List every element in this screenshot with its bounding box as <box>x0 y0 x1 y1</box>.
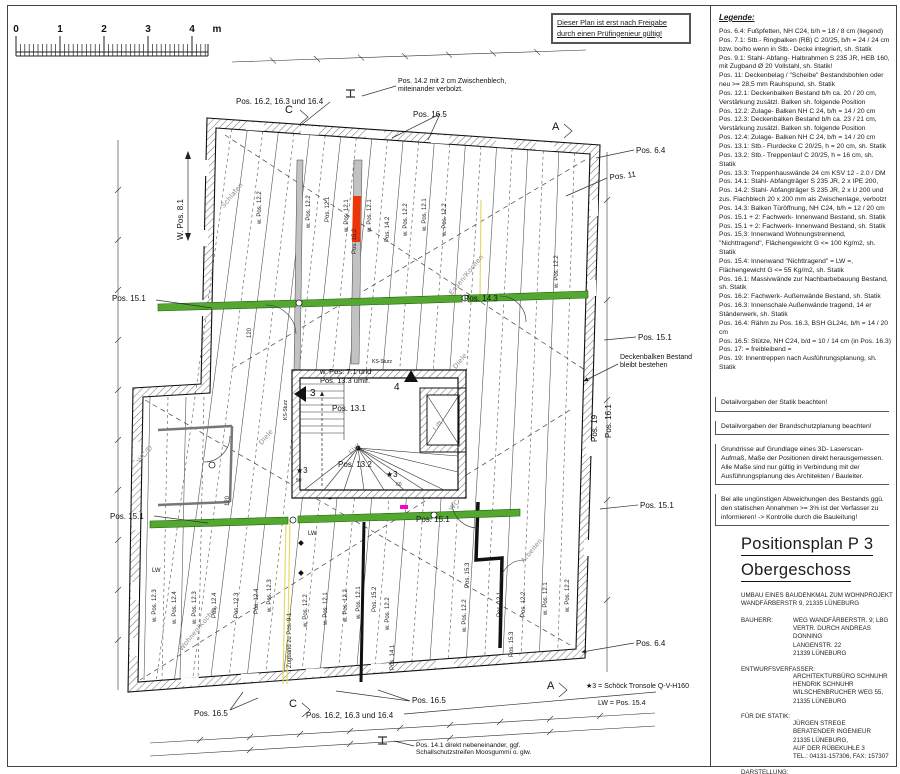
note-brandschutz: Detailvorgaben der Brandschutzplanung be… <box>715 421 889 436</box>
section-flag-c-top <box>300 110 308 124</box>
section-flag-a-bottom <box>559 683 567 697</box>
green-beams-row2 <box>150 509 520 528</box>
legend-heading: Legende: <box>719 13 891 22</box>
plan-title-line2: Obergeschoss <box>741 561 851 582</box>
green-beams-row1 <box>158 291 588 311</box>
note-laserscan: Grundrisse auf Grundlage eines 3D- Laser… <box>715 444 889 485</box>
note-statik: Detailvorgaben der Statik beachten! <box>715 397 889 412</box>
project-description: UMBAU EINES BAUDENKMAL ZUM WOHNPROJEKT W… <box>741 592 893 609</box>
section-flag-c-bottom <box>302 703 310 717</box>
statik-label: FÜR DIE STATIK: <box>741 713 893 720</box>
approval-note-text: Dieser Plan ist erst nach Freigabe durch… <box>557 18 667 38</box>
bauherr-row: BAUHERR: WEG WANDFÄRBERSTR. 9; LBG VERTR… <box>741 617 893 659</box>
darstellung-label: DARSTELLUNG: <box>741 769 893 774</box>
entwurf-value: ARCHITEKTURBÜRO SCHNUHR HENDRIK SCHNUHR … <box>793 673 893 706</box>
ibeam-icon <box>378 737 387 744</box>
scale-bar: 0 1 2 3 4 m <box>12 22 232 66</box>
scale-label-3: 3 <box>145 24 151 35</box>
legend-entries: Pos. 6.4: Fußpfetten, NH C24, b/h = 18 /… <box>719 28 891 373</box>
entwurf-label: ENTWURFSVERFASSER: <box>741 666 893 673</box>
scale-label-2: 2 <box>101 24 107 35</box>
scale-label-1: 1 <box>57 24 63 35</box>
section-flag-a-top <box>564 124 572 138</box>
darstellung-section: DARSTELLUNG: OBERGESCHOSS M.: 1 : 50 <box>741 769 893 774</box>
statik-section: FÜR DIE STATIK: JÜRGEN STREGE BERATENDER… <box>741 713 893 762</box>
entwurf-section: ENTWURFSVERFASSER: ARCHITEKTURBÜRO SCHNU… <box>741 666 893 706</box>
ibeam-icon <box>346 90 355 97</box>
level-markers <box>298 540 304 576</box>
legend-block: Legende: Pos. 6.4: Fußpfetten, NH C24, b… <box>719 13 891 373</box>
partition-wall-pos-15-2 <box>361 522 364 682</box>
title-block: Positionsplan P 3 Obergeschoss UMBAU EIN… <box>741 535 893 774</box>
note-abweichungen: Bei alle ungünstigen Abweichungen des Be… <box>715 494 889 526</box>
scale-label-m: m <box>213 24 222 35</box>
notes-block: Detailvorgaben der Statik beachten! Deta… <box>715 397 889 535</box>
right-panel: Legende: Pos. 6.4: Fußpfetten, NH C24, b… <box>713 5 895 766</box>
scale-label-4: 4 <box>189 24 195 35</box>
scale-label-0: 0 <box>13 24 19 35</box>
bauherr-value: WEG WANDFÄRBERSTR. 9; LBG VERTR. DURCH A… <box>793 617 893 659</box>
bauherr-label: BAUHERR: <box>741 617 793 659</box>
magenta-marker <box>400 505 408 509</box>
drawing-sheet: 0 1 2 3 4 m Dieser Plan ist erst nach Fr… <box>0 0 900 774</box>
statik-value: JÜRGEN STREGE BERATENDER INGENIEUR 21335… <box>793 720 893 762</box>
approval-note-box: Dieser Plan ist erst nach Freigabe durch… <box>551 13 691 44</box>
red-wall-segment <box>352 196 361 242</box>
plan-title-line1: Positionsplan P 3 <box>741 535 873 556</box>
